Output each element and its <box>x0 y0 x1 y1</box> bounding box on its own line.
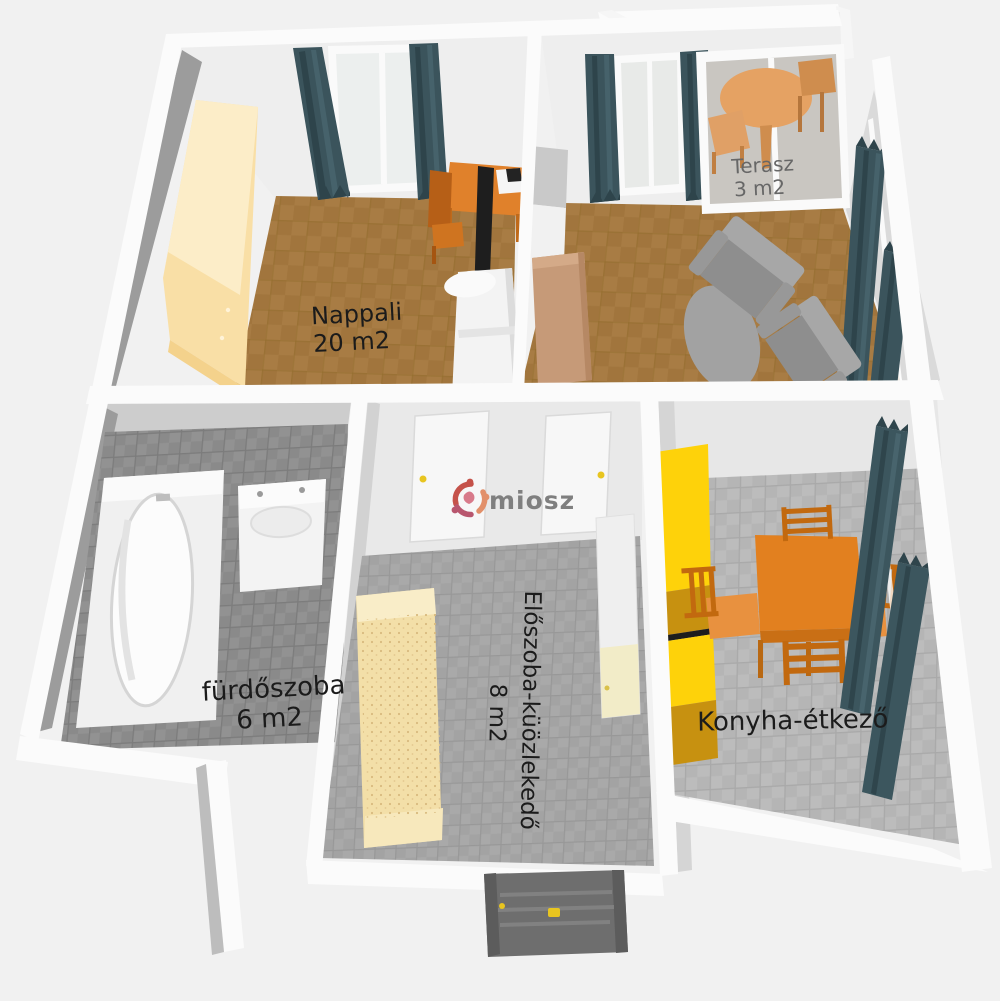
hallway <box>320 392 654 866</box>
bathroom-sink <box>238 479 326 592</box>
label-terrace: Terasz <box>730 151 795 178</box>
label-hallway-area: 8 m2 <box>483 683 510 742</box>
label-kitchen: Konyha-étkező <box>697 704 889 737</box>
hall-door <box>410 411 489 542</box>
shelf-unit <box>596 514 640 718</box>
entry-door-handle <box>548 908 560 917</box>
door-handle <box>598 472 605 479</box>
label-hallway: Előszoba-küözlekedő <box>515 590 545 830</box>
entry-door <box>484 870 628 957</box>
label-living-room-area: 20 m2 <box>312 326 390 358</box>
hall-cabinet <box>356 588 443 848</box>
entry-door-keyhole <box>499 903 505 909</box>
miosz-logo-text: miosz <box>489 486 575 515</box>
label-terrace-area: 3 m2 <box>733 175 785 202</box>
sideboard <box>532 252 592 386</box>
door-handle <box>420 476 427 483</box>
label-bathroom-area: 6 m2 <box>235 702 303 735</box>
floorplan-render: Nappali 20 m2 Terasz 3 m2 fürdőszoba 6 m… <box>0 0 1000 1001</box>
hall-door <box>541 412 611 535</box>
floorplan-svg: Nappali 20 m2 Terasz 3 m2 fürdőszoba 6 m… <box>0 0 1000 1001</box>
laptop <box>496 168 523 194</box>
